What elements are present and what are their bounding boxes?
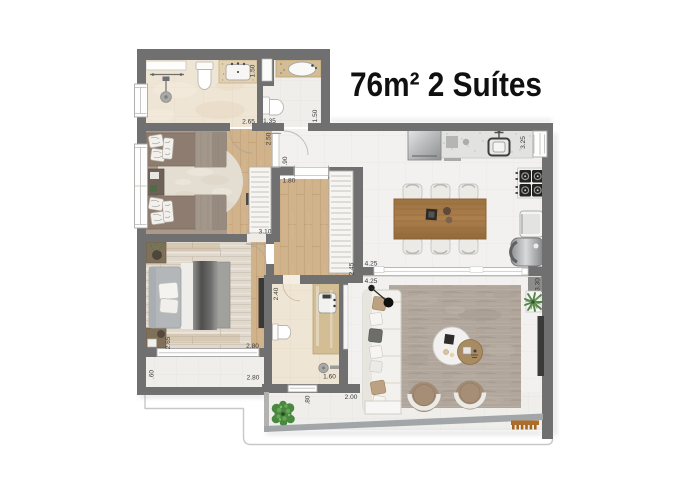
svg-text:76m² 2 Suítes: 76m² 2 Suítes (350, 66, 542, 104)
svg-text:1.80: 1.80 (283, 178, 296, 185)
svg-text:4.25: 4.25 (365, 278, 378, 285)
svg-text:2.45: 2.45 (349, 262, 356, 275)
svg-text:2.65: 2.65 (242, 119, 255, 126)
svg-text:1.50: 1.50 (312, 109, 319, 122)
svg-text:1.50: 1.50 (250, 64, 257, 77)
svg-text:2.00: 2.00 (345, 394, 358, 401)
svg-text:2.65: 2.65 (165, 336, 172, 349)
svg-text:2.50: 2.50 (266, 132, 273, 145)
svg-text:1.60: 1.60 (323, 374, 336, 381)
svg-text:2.40: 2.40 (273, 287, 280, 300)
svg-text:2.80: 2.80 (246, 343, 259, 350)
svg-text:.60: .60 (149, 370, 156, 379)
svg-text:3.10: 3.10 (259, 229, 272, 236)
svg-text:.80: .80 (305, 395, 312, 404)
svg-text:2.80: 2.80 (247, 375, 260, 382)
svg-text:.90: .90 (282, 156, 289, 165)
svg-text:3.25: 3.25 (520, 136, 527, 149)
svg-text:3.30: 3.30 (535, 278, 542, 291)
svg-text:1.35: 1.35 (263, 118, 276, 125)
svg-text:4.25: 4.25 (365, 261, 378, 268)
